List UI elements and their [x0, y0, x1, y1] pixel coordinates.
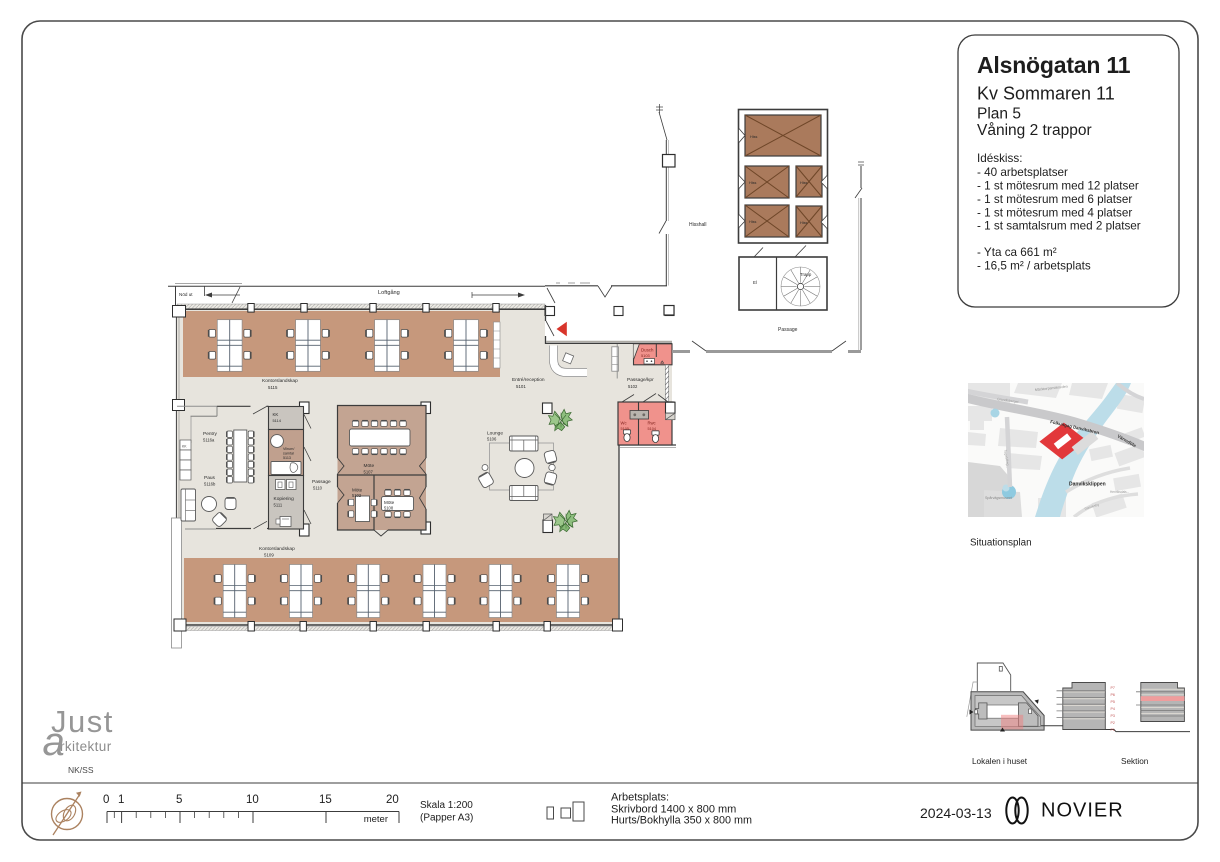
svg-text:Våning 2 trappor: Våning 2 trappor	[977, 122, 1092, 139]
svg-text:5102: 5102	[628, 384, 638, 389]
svg-text:Skala 1:200: Skala 1:200	[420, 800, 473, 811]
svg-text:5116b: 5116b	[204, 482, 216, 487]
svg-text:samtal: samtal	[283, 452, 294, 456]
svg-text:Passage: Passage	[312, 479, 331, 485]
svg-text:Passage: Passage	[778, 327, 798, 333]
svg-text:Sektion: Sektion	[1121, 757, 1149, 766]
svg-text:Hiss: Hiss	[800, 221, 807, 225]
svg-text:P2: P2	[1111, 721, 1115, 725]
svg-text:Idéskiss:: Idéskiss:	[977, 152, 1022, 165]
svg-text:P7: P7	[1111, 686, 1115, 690]
svg-text:P6: P6	[1111, 693, 1115, 697]
svg-text:Möte: Möte	[364, 463, 375, 469]
svg-text:- 40 arbetsplatser: - 40 arbetsplatser	[977, 166, 1068, 179]
svg-text:2024-03-13: 2024-03-13	[920, 805, 992, 821]
svg-text:15: 15	[319, 794, 332, 806]
svg-text:Passage/kpr: Passage/kpr	[627, 377, 654, 383]
svg-text:a: a	[43, 720, 65, 764]
svg-text:Lokalen i huset: Lokalen i huset	[972, 757, 1028, 766]
svg-text:Möte: Möte	[352, 488, 363, 493]
svg-text:rkitektur: rkitektur	[60, 739, 112, 754]
svg-text:5108: 5108	[384, 506, 394, 511]
svg-text:P5: P5	[1111, 700, 1115, 704]
svg-text:- 1 st samtalsrum med 2 platse: - 1 st samtalsrum med 2 platser	[977, 220, 1141, 233]
svg-text:Pentry: Pentry	[203, 431, 217, 437]
svg-text:5103: 5103	[641, 353, 650, 358]
svg-text:5116a: 5116a	[203, 438, 215, 443]
svg-text:5110: 5110	[313, 486, 323, 491]
svg-text:5106: 5106	[487, 437, 497, 442]
svg-text:1: 1	[118, 794, 124, 806]
svg-text:Danviksklippen: Danviksklippen	[1069, 482, 1106, 488]
svg-text:meter: meter	[364, 814, 388, 825]
svg-text:Alsnögatan 11: Alsnögatan 11	[977, 52, 1131, 78]
svg-text:Paus: Paus	[204, 475, 216, 481]
svg-text:Kontorslandskap: Kontorslandskap	[262, 378, 298, 384]
svg-text:El: El	[753, 280, 757, 285]
svg-text:NOVIER: NOVIER	[1041, 800, 1124, 822]
svg-text:Kontorslandskap: Kontorslandskap	[259, 546, 295, 552]
svg-text:- Yta ca 661 m²: - Yta ca 661 m²	[977, 246, 1057, 259]
svg-text:(Papper A3): (Papper A3)	[420, 813, 473, 824]
svg-text:Vilrum/: Vilrum/	[283, 447, 295, 451]
svg-text:Entré/reception: Entré/reception	[512, 377, 545, 383]
svg-text:P3: P3	[1111, 714, 1115, 718]
svg-text:Plan 5: Plan 5	[977, 106, 1021, 123]
svg-text:NK/SS: NK/SS	[68, 765, 94, 775]
svg-text:5101: 5101	[516, 384, 526, 389]
svg-text:5115: 5115	[268, 385, 278, 390]
svg-text:Arbetsplats:: Arbetsplats:	[611, 792, 669, 804]
svg-text:Hiss: Hiss	[749, 181, 756, 185]
svg-text:Loftgång: Loftgång	[378, 289, 400, 296]
svg-text:Hurts/Bokhylla 350 x 800 mm: Hurts/Bokhylla 350 x 800 mm	[611, 815, 752, 827]
svg-text:- 1 st mötesrum med 4 platser: - 1 st mötesrum med 4 platser	[977, 207, 1132, 220]
svg-text:5113: 5113	[283, 456, 291, 460]
svg-text:Dusch: Dusch	[641, 348, 654, 353]
svg-text:Kopiering: Kopiering	[274, 496, 295, 502]
svg-text:- 1 st mötesrum med 12 platser: - 1 st mötesrum med 12 platser	[977, 180, 1139, 193]
svg-text:Trapp: Trapp	[800, 272, 812, 277]
svg-text:P1: P1	[1111, 728, 1115, 732]
svg-text:Situationsplan: Situationsplan	[970, 538, 1032, 549]
svg-text:Hiss: Hiss	[750, 135, 757, 139]
svg-text:Spårvägsmuseet: Spårvägsmuseet	[985, 496, 1012, 500]
svg-text:Skrivbord 1400 x 800 mm: Skrivbord 1400 x 800 mm	[611, 803, 736, 815]
svg-text:5114: 5114	[273, 418, 282, 423]
svg-text:5109: 5109	[264, 553, 274, 558]
svg-text:Rwc: Rwc	[648, 421, 656, 426]
svg-text:Henriksdals...: Henriksdals...	[1110, 490, 1129, 494]
svg-text:Kv Sommaren 11: Kv Sommaren 11	[977, 84, 1115, 104]
svg-text:5105: 5105	[621, 427, 629, 431]
svg-text:10: 10	[246, 794, 259, 806]
svg-text:20: 20	[386, 794, 399, 806]
svg-text:KK: KK	[182, 445, 187, 449]
svg-text:Hisshall: Hisshall	[689, 222, 707, 228]
svg-text:P4: P4	[1111, 707, 1115, 711]
svg-text:Möte: Möte	[384, 500, 395, 505]
svg-text:0: 0	[103, 794, 109, 806]
svg-text:5: 5	[176, 794, 182, 806]
svg-text:Nöd ut: Nöd ut	[179, 292, 193, 297]
svg-text:5107: 5107	[364, 470, 374, 475]
svg-text:5104: 5104	[648, 427, 656, 431]
svg-text:5111: 5111	[274, 503, 283, 508]
svg-text:Wc: Wc	[621, 421, 627, 426]
svg-text:- 1 st mötesrum med 6 platser: - 1 st mötesrum med 6 platser	[977, 193, 1132, 206]
svg-text:5102: 5102	[352, 493, 362, 498]
svg-text:KK: KK	[273, 412, 279, 417]
svg-text:Hiss: Hiss	[749, 220, 756, 224]
svg-text:Hiss: Hiss	[800, 181, 807, 185]
svg-text:- 16,5 m² / arbetsplats: - 16,5 m² / arbetsplats	[977, 260, 1091, 273]
